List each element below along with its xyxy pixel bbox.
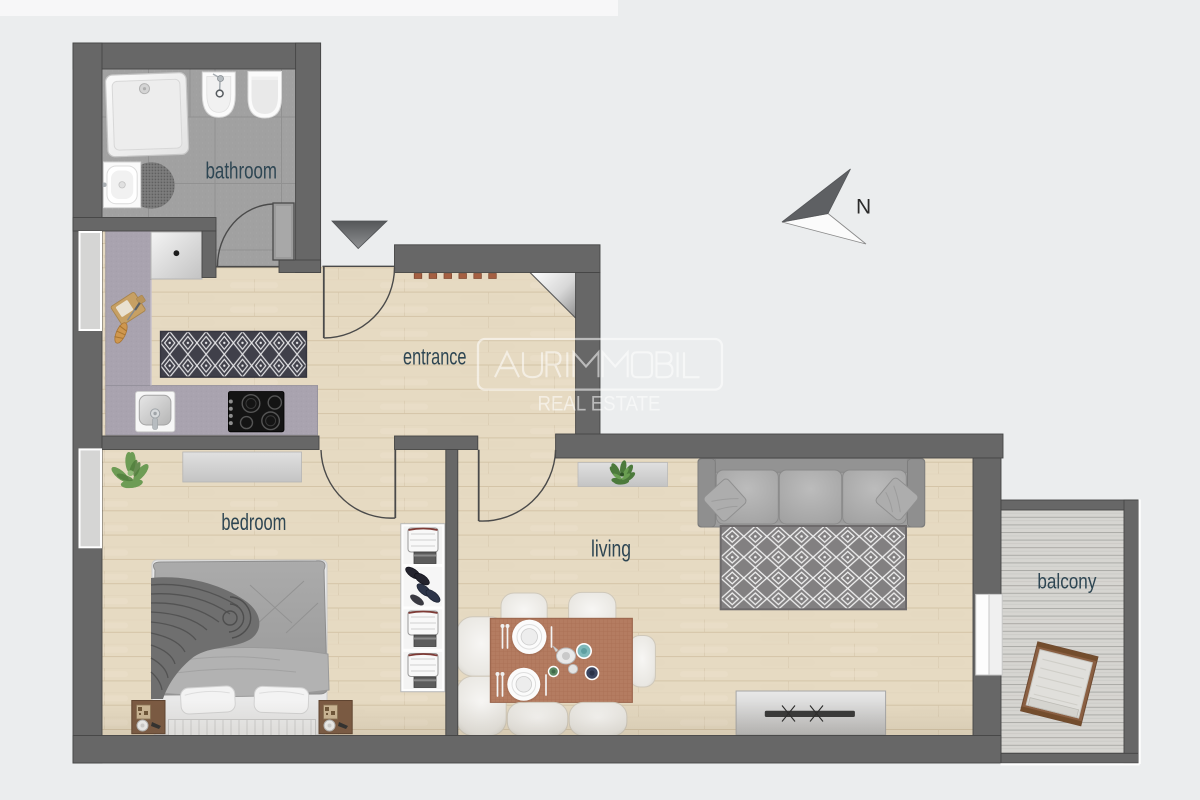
svg-text:REAL ESTATE: REAL ESTATE <box>538 392 661 416</box>
svg-text:balcony: balcony <box>1037 571 1096 594</box>
svg-text:N: N <box>856 196 871 219</box>
svg-text:entrance: entrance <box>403 344 467 370</box>
svg-text:bedroom: bedroom <box>221 509 286 535</box>
svg-text:bathroom: bathroom <box>206 158 278 184</box>
svg-text:living: living <box>591 536 631 562</box>
